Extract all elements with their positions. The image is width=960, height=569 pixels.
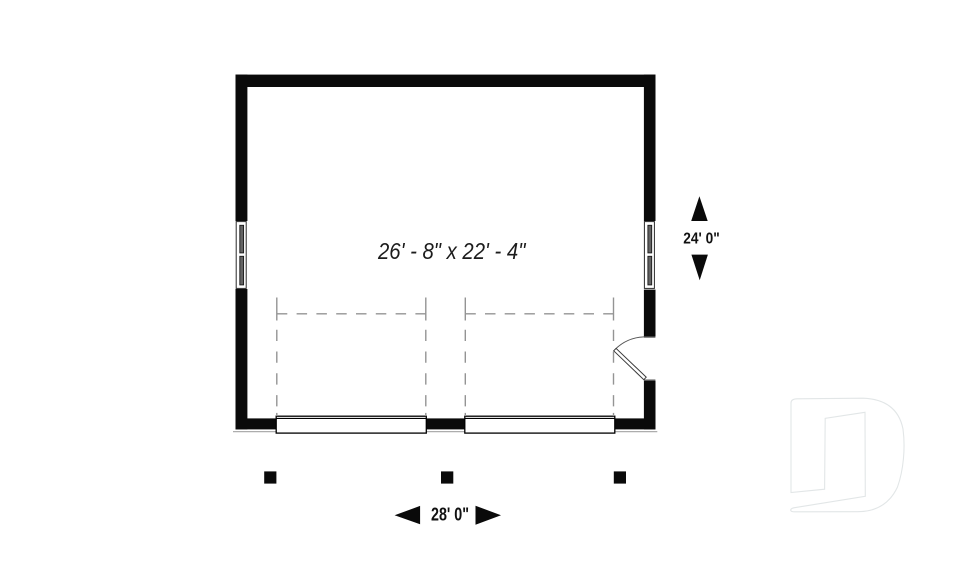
svg-text:28' 0": 28' 0" [431, 504, 469, 524]
svg-text:24' 0": 24' 0" [683, 230, 719, 247]
svg-text:26' - 8" x 22' - 4": 26' - 8" x 22' - 4" [377, 238, 527, 264]
